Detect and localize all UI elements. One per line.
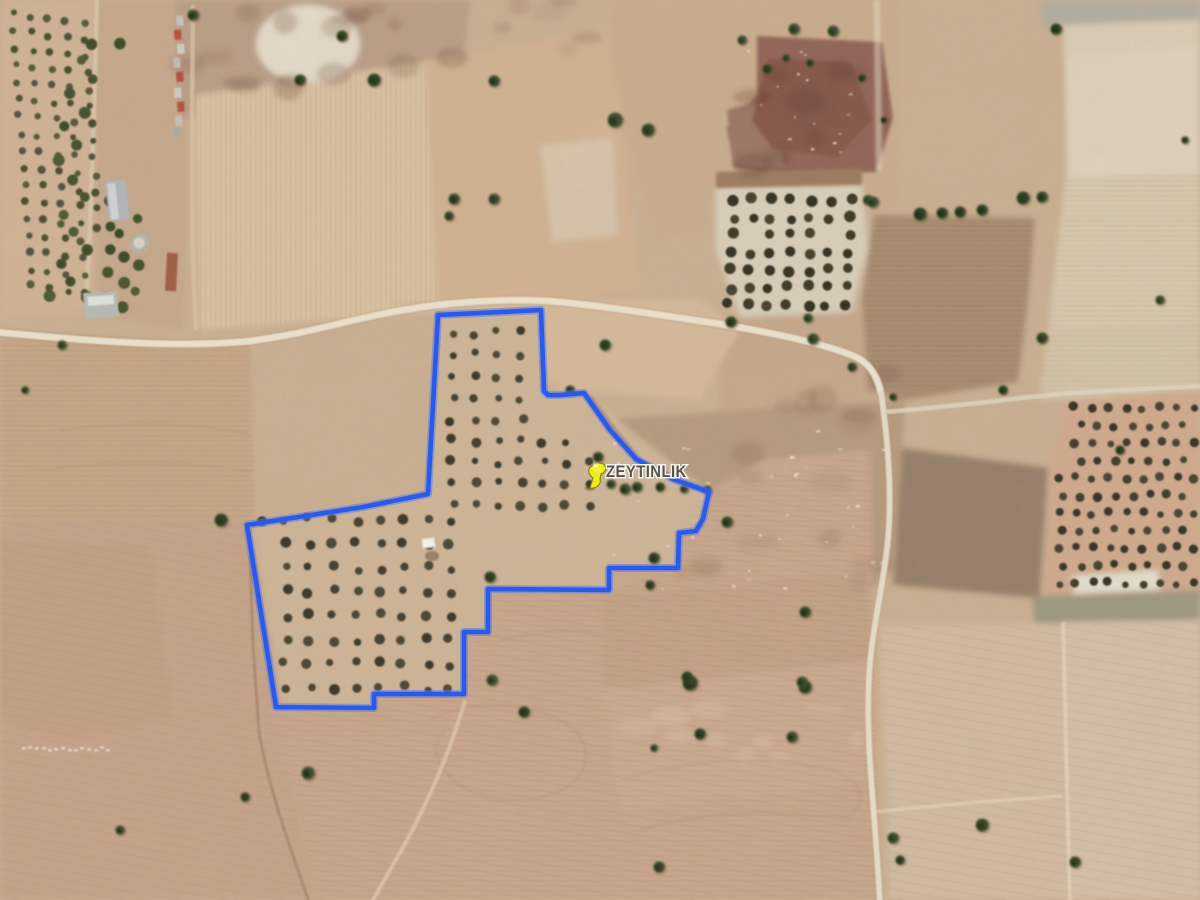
svg-text:ZEYTINLIK: ZEYTINLIK — [606, 463, 687, 481]
